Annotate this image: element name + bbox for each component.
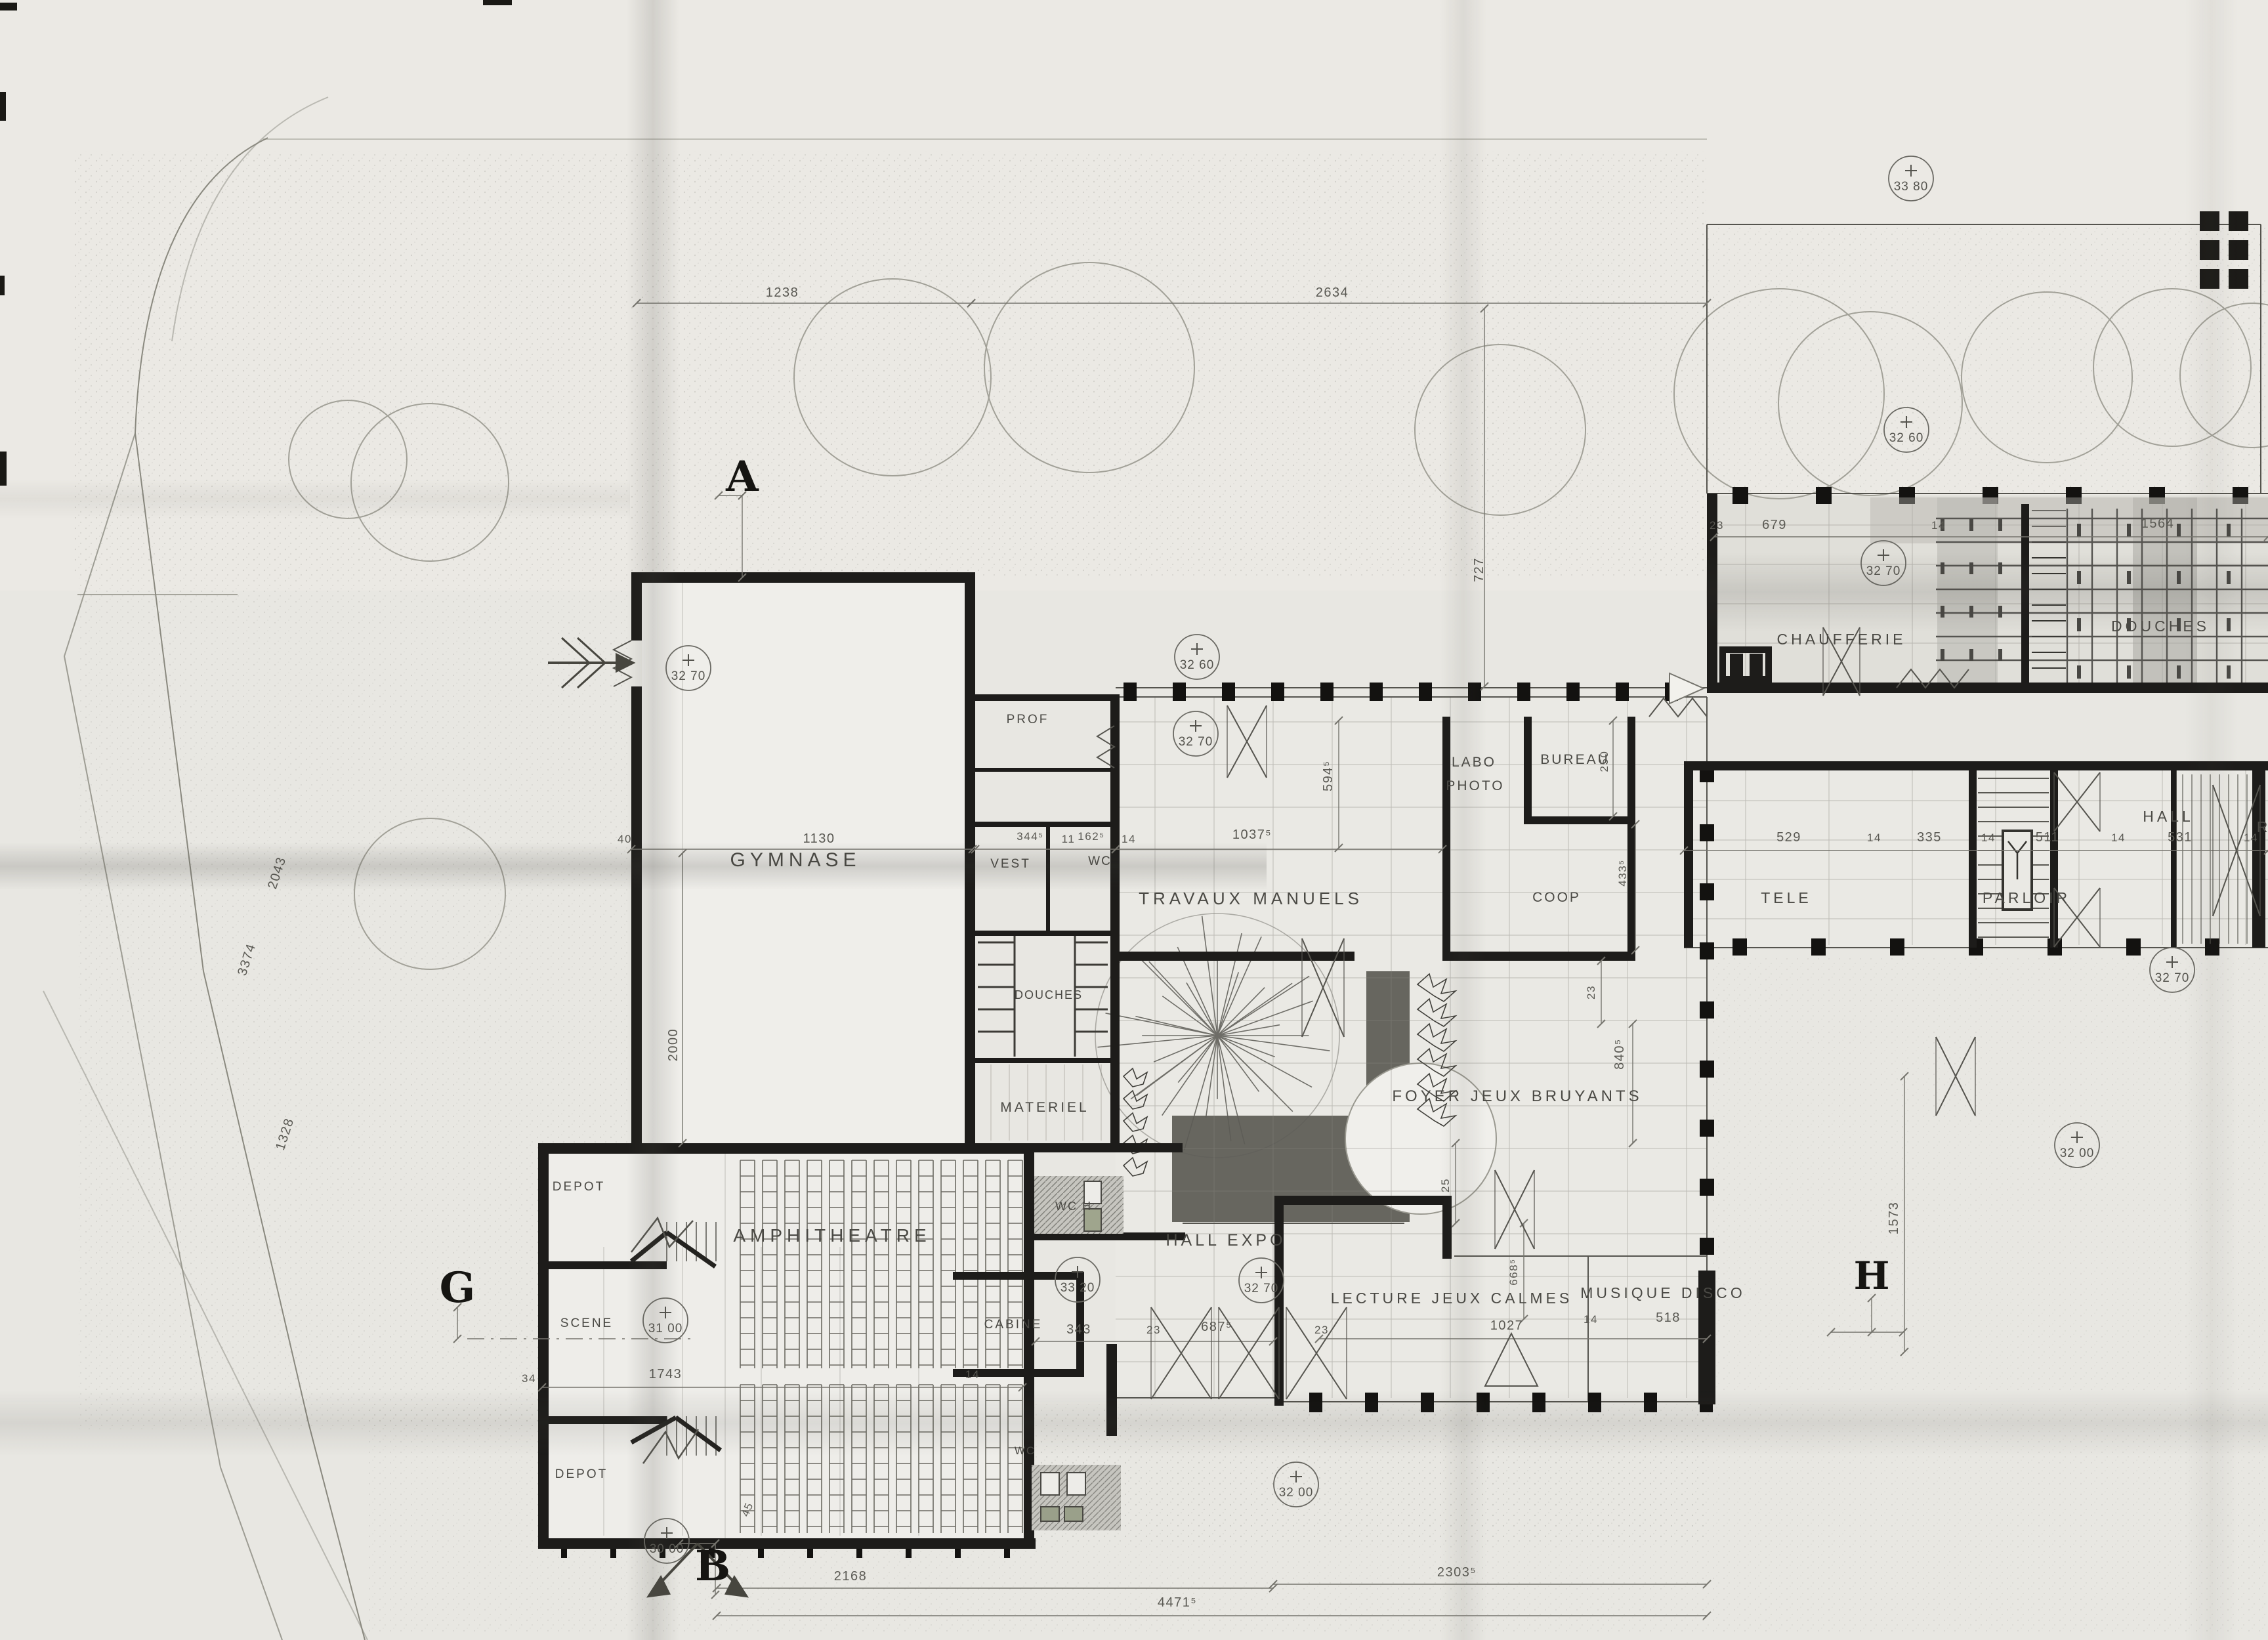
wall-segment [1274,1196,1446,1205]
room-label: MATERIEL [1000,1100,1089,1115]
room-label: PROF [1007,713,1049,726]
room-label: TELE [1761,889,1812,906]
wall-segment [1719,676,1772,683]
dimension-text: 14 [1981,831,1996,844]
dimension-text: 343 [1066,1322,1091,1337]
room-label: COOP [1532,890,1581,905]
dimension-text: 344⁵ [1017,830,1043,843]
dimension-text: 23 [1710,519,1724,532]
dimension-text: 14 [1931,519,1946,532]
room-label: SCENE [560,1316,613,1330]
dimension-text: 2634 [1316,285,1349,300]
dimension-text-vertical: 433⁵ [1616,859,1629,886]
room-label: AMPHITHEATRE [733,1225,931,1246]
dimension-text: 4471⁵ [1158,1595,1197,1610]
wall-segment [953,1272,1084,1280]
room-label: R [2257,818,2268,835]
elevation-value: 33 80 [1894,180,1929,194]
elevation-value: 32 00 [1279,1486,1314,1500]
dimension-text: 2168 [834,1569,868,1584]
wall-segment [975,1058,1113,1063]
dimension-text: 1037⁵ [1232,828,1272,842]
wall-segment [1627,717,1635,959]
wall-segment [1034,1143,1183,1152]
room-label: TRAVAUX MANUELS [1139,889,1363,908]
room-label: DEPOT [553,1180,605,1194]
elevation-value: 32 00 [2060,1146,2095,1160]
dimension-text: 14 [2244,831,2258,844]
dimension-text: 14 [965,1368,980,1381]
dimension-text: 14 [1584,1313,1598,1326]
dimension-text: 1027 [1490,1318,1524,1333]
wall-segment [1750,654,1763,676]
wall-segment [975,822,1113,827]
room-label: CABINE [984,1318,1043,1332]
elevation-value: 32 70 [1179,735,1213,749]
section-marker-letter: H [1854,1253,1890,1298]
wall-segment [631,572,974,583]
dimension-text: 1238 [766,285,799,300]
room-label: MUSIQUE DISCO [1580,1284,1746,1301]
dimension-text-vertical: 668⁵ [1507,1258,1520,1285]
elevation-value: 32 60 [1180,658,1215,672]
dimension-text: 529 [1776,830,1801,845]
room-label: WC H [1055,1200,1092,1213]
dimension-text: 14 [1867,831,1881,844]
dimension-text-vertical: 594⁵ [1321,760,1335,791]
dimension-text: 1564 [2141,516,2175,531]
dimension-text: 23 [1314,1324,1329,1336]
elevation-value: 32 70 [1244,1282,1279,1295]
wall-segment [538,1143,1034,1154]
wall-segment [1524,717,1532,822]
dimension-text-vertical: 1573 [1887,1202,1901,1235]
dimension-text: 335 [1917,830,1942,845]
floor-plan-drawing: GYMNASEPROFVESTWCDOUCHESMATERIELTRAVAUX … [0,0,2268,1640]
dimension-text: 687⁵ [1201,1320,1232,1334]
room-label: CHAUFFERIE [1777,631,1906,648]
dimension-text: 23 [1146,1324,1161,1336]
dimension-text: 14 [2111,831,2126,844]
room-label: DEPOT [555,1467,608,1481]
dimension-text: 162⁵ [1078,830,1104,843]
wall-segment [538,1143,549,1549]
wall-segment [1719,646,1772,653]
room-label: FOYER JEUX BRUYANTS [1392,1087,1642,1105]
wall-segment [975,931,1113,936]
wall-segment [1524,816,1635,824]
section-marker-letter: B [695,1542,730,1591]
wall-segment [1110,694,1120,1152]
wall-segment [1707,683,2268,693]
wall-segment [1969,770,1977,948]
elevation-value: 32 60 [1889,431,1924,445]
room-label: DOUCHES [1015,988,1083,1001]
wall-segment [2171,770,2176,948]
wall-segment [1116,952,1354,961]
dimension-text: 679 [1762,518,1787,532]
scanned-floor-plan-sheet: GYMNASEPROFVESTWCDOUCHESMATERIELTRAVAUX … [0,0,2268,1640]
dimension-text: 34 [522,1372,536,1385]
section-marker-letter: A [725,452,759,501]
dimension-text-vertical: 250 [1598,751,1610,772]
wall-segment [538,1538,1036,1549]
dimension-text-vertical: 840⁵ [1612,1038,1627,1070]
dimension-text: 518 [1656,1311,1681,1325]
room-label: PARLOIR [1983,889,2070,906]
wall-segment [975,694,1116,701]
wall-segment [1684,761,1693,948]
elevation-value: 33 20 [1060,1281,1095,1295]
section-marker-letter: G [440,1263,476,1313]
wall-segment [1684,761,2268,770]
room-label: HALL EXPO [1165,1231,1286,1250]
wall-segment [1730,654,1743,676]
wall-segment [975,768,1113,772]
dimension-text: 511 [2036,830,2059,845]
elevation-value: 32 70 [2155,971,2190,985]
dimension-text-vertical: 23 [1585,985,1597,999]
